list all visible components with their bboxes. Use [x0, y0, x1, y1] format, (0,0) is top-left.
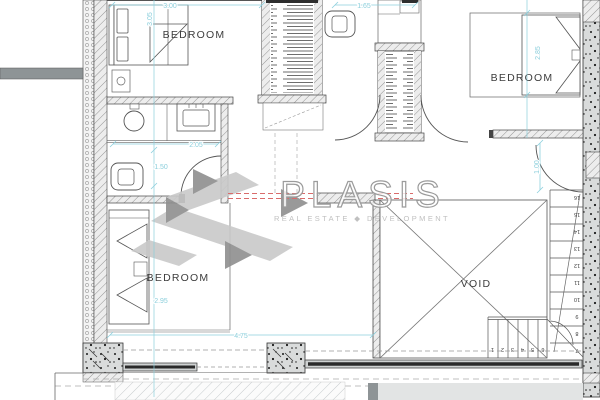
shaft-cut-edge [402, 0, 418, 3]
right-wall-bottom-cap [583, 373, 600, 383]
dim-label: 1.65 [357, 3, 371, 10]
column [267, 343, 305, 373]
cabinet-top [378, 0, 421, 43]
left-wall-hatch [94, 0, 107, 373]
shaft-fill [386, 53, 413, 131]
duct-shaft-right [375, 0, 424, 141]
step-number: 16 [574, 194, 580, 200]
left-wall-insulation [83, 0, 94, 373]
shaft-cut-edge [266, 0, 318, 3]
stair-wall-hatch [586, 152, 600, 178]
dim-label: 2.95 [154, 298, 168, 305]
wc-top [325, 11, 355, 37]
room-label: BEDROOM [491, 72, 554, 84]
shaft-frame-left [378, 51, 385, 133]
floor-plan-sheet: BEDROOM [0, 0, 600, 400]
right-wall-concrete [583, 0, 600, 397]
void-label: VOID [461, 278, 491, 290]
shaft-frame-right [414, 51, 421, 133]
dim-label: 2.85 [535, 46, 542, 60]
party-wall-band [0, 68, 83, 79]
dim-label: 3.05 [147, 12, 154, 26]
room-label: BEDROOM [163, 29, 226, 41]
shaft-fill [271, 1, 313, 93]
step-number: 9 [575, 313, 578, 319]
right-wall-top-cap [583, 0, 600, 22]
terrace-hatch [115, 382, 345, 400]
room-label: BEDROOM [147, 272, 210, 284]
bed-symbol [109, 210, 149, 324]
column [83, 343, 123, 373]
shaft-frame-right [314, 0, 322, 95]
dim-label: 1.00 [534, 160, 541, 174]
step-number: 7 [575, 347, 578, 353]
step-number: 8 [575, 330, 578, 336]
shaft-frame-left [262, 0, 270, 95]
step-number: 10 [574, 296, 580, 302]
step-number: 12 [574, 262, 580, 268]
step-number: 11 [574, 279, 580, 285]
vanity-sink [177, 104, 215, 131]
step-number: 15 [574, 211, 580, 217]
logo-text: PLASIS REAL ESTATE ◆ DEVELOPMENT [274, 174, 450, 223]
logo-tagline: REAL ESTATE ◆ DEVELOPMENT [274, 214, 450, 223]
wall-cap-top [375, 43, 424, 51]
toilet-icon [111, 163, 143, 190]
wall-cap [83, 373, 123, 382]
wall-cap [258, 95, 326, 103]
toilet-lid [332, 16, 347, 32]
floor-plan-drawing: BEDROOM [0, 0, 600, 400]
wall-post [489, 130, 493, 138]
dim-label: 3.00 [163, 3, 177, 10]
dim-label: 2.05 [189, 142, 203, 149]
dim-label: 1.50 [154, 164, 168, 171]
parapet-band [368, 383, 378, 400]
logo-wordmark: PLASIS [280, 174, 446, 215]
lower-roof [378, 383, 583, 400]
wall-segment [493, 130, 583, 138]
duct-shaft-left [258, 0, 326, 130]
step-number: 13 [574, 245, 580, 251]
wall-segment [107, 97, 233, 104]
dim-label: 4.75 [234, 333, 248, 340]
step-number: 14 [574, 228, 580, 234]
wall-cap-bottom [375, 133, 424, 141]
